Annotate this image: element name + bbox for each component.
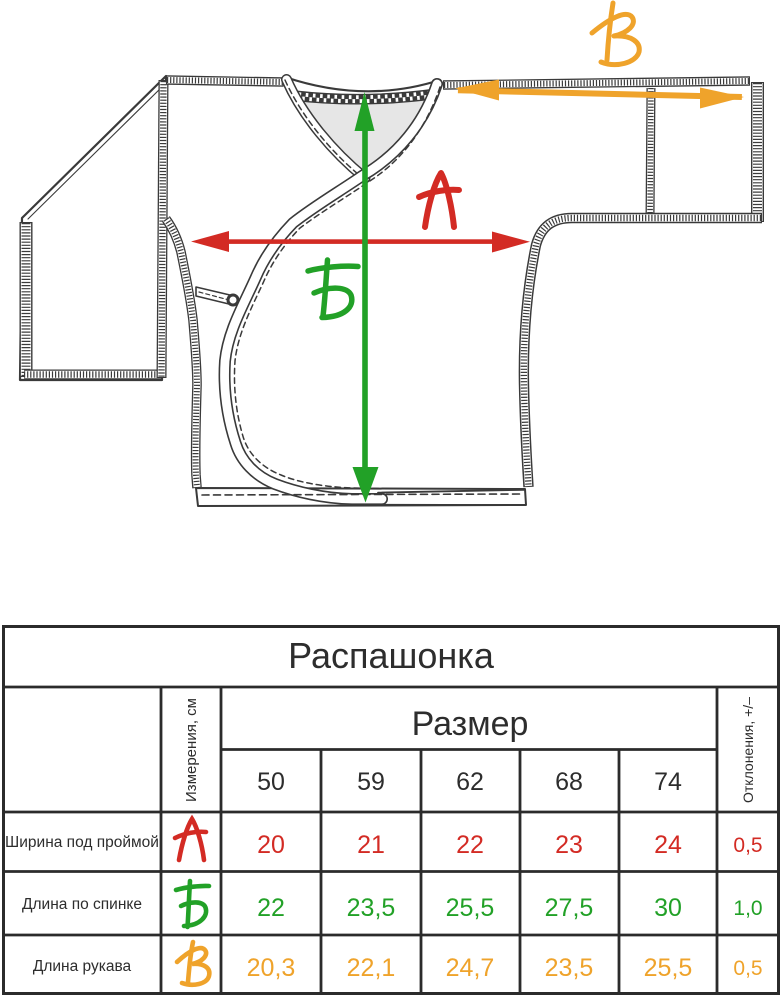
svg-text:0,5: 0,5	[733, 957, 762, 980]
svg-text:23,5: 23,5	[545, 954, 594, 982]
svg-text:27,5: 27,5	[545, 894, 594, 922]
svg-text:Длина рукава: Длина рукава	[33, 958, 132, 975]
svg-text:Размер: Размер	[412, 705, 529, 743]
svg-text:23: 23	[555, 831, 583, 859]
svg-text:Ширина под проймой: Ширина под проймой	[5, 834, 159, 851]
svg-text:23,5: 23,5	[347, 894, 396, 922]
svg-text:Отклонения, +/–: Отклонения, +/–	[740, 697, 756, 803]
svg-text:Длина по спинке: Длина по спинке	[22, 896, 142, 913]
svg-text:74: 74	[654, 768, 682, 796]
svg-text:20,3: 20,3	[247, 954, 296, 982]
svg-text:Распашонка: Распашонка	[288, 635, 495, 676]
svg-text:22,1: 22,1	[347, 954, 396, 982]
svg-text:25,5: 25,5	[446, 894, 495, 922]
svg-text:68: 68	[555, 768, 583, 796]
svg-text:25,5: 25,5	[644, 954, 693, 982]
svg-text:22: 22	[257, 894, 285, 922]
svg-text:62: 62	[456, 768, 484, 796]
svg-text:30: 30	[654, 894, 682, 922]
svg-text:22: 22	[456, 831, 484, 859]
svg-text:50: 50	[257, 768, 285, 796]
svg-text:1,0: 1,0	[733, 897, 762, 920]
svg-text:59: 59	[357, 768, 385, 796]
svg-text:24,7: 24,7	[446, 954, 495, 982]
svg-text:20: 20	[257, 831, 285, 859]
svg-text:24: 24	[654, 831, 682, 859]
svg-text:21: 21	[357, 831, 385, 859]
svg-text:Измерения, см: Измерения, см	[183, 698, 200, 802]
svg-text:0,5: 0,5	[733, 834, 762, 857]
